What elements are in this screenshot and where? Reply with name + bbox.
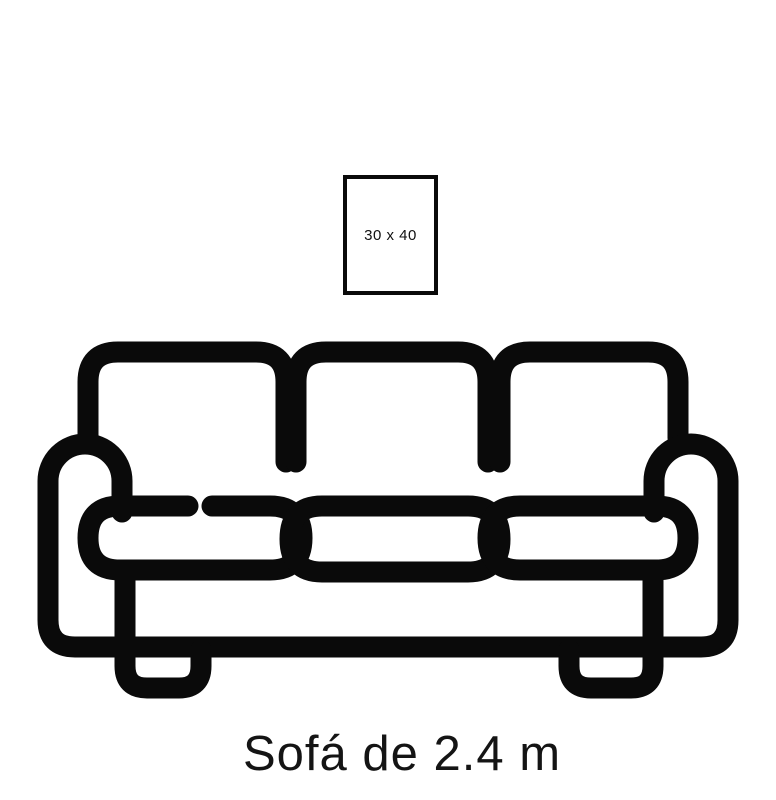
poster-size-guide-diagram: 30 x 40 Sofá de 2.4 m xyxy=(0,0,776,800)
sofa-seat-cushion-left xyxy=(88,506,302,570)
sofa-seat-cushion-right xyxy=(488,506,688,570)
sofa-icon xyxy=(0,0,776,800)
sofa-size-caption: Sofá de 2.4 m xyxy=(14,726,776,782)
sofa-seat-cushion-middle xyxy=(290,506,500,572)
sofa-back-cushion-right xyxy=(500,352,678,462)
sofa-back-cushion-middle xyxy=(296,352,488,462)
sofa-back-cushion-left xyxy=(88,352,286,462)
sofa-armrests-and-base xyxy=(48,444,728,647)
